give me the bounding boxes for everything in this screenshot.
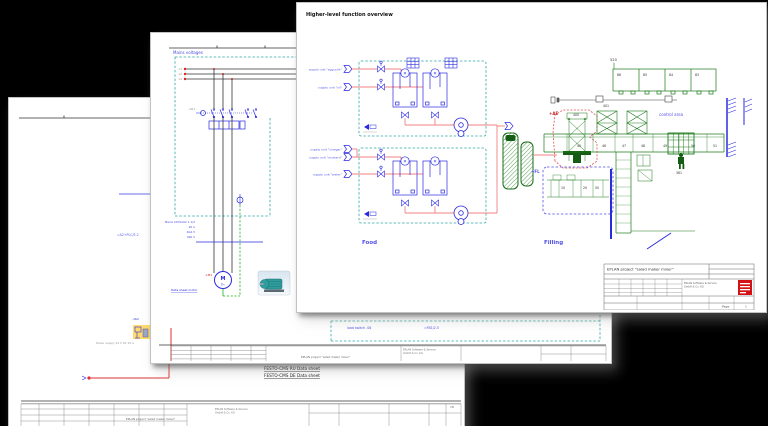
heater-icons [407, 58, 457, 68]
top-station-numbers: 86 85 84 83 [617, 73, 699, 77]
interruption-arrow-icon [82, 376, 86, 380]
back-page-marker: 1B [450, 405, 454, 409]
front-titleblock-project: EPLAN project "salad maker mixer" [607, 267, 674, 272]
fl-conveyor [547, 175, 609, 197]
bottom-note-ref: =FB1/2.5 [424, 326, 439, 330]
motor-photo [258, 271, 290, 295]
bus-tap-dot [184, 73, 186, 75]
ref-400: 400 [573, 113, 579, 117]
middle-title-block [159, 345, 606, 361]
desktop-canvas: =A2+PLC/5.2 -1K2 Power supply 24 V DC 10… [0, 0, 768, 426]
highlighted-symbol-cluster: -1K2 [132, 317, 151, 341]
front-page-label: Page [722, 305, 729, 309]
food-label: Food [362, 240, 377, 246]
motor-symbol: M 3~ -1M1 [205, 272, 231, 289]
station-machines [597, 111, 647, 134]
svg-text:45: 45 [577, 144, 581, 148]
ref-361: 361 [676, 171, 682, 175]
supply-note-text: Power supply 24 V DC 10 A [96, 341, 134, 345]
supply-label-2: supply unit "oil" [318, 85, 342, 89]
motor-feeder-circuit: -1Q1 [188, 69, 257, 273]
fl-dashed-box [543, 167, 613, 214]
svg-text:86: 86 [617, 73, 621, 77]
top-conveyor-row [613, 69, 716, 94]
middle-header-label: Mains voltages [173, 50, 203, 55]
front-titleblock-company2: GmbH & Co. KG [684, 285, 704, 289]
svg-text:10: 10 [561, 186, 565, 190]
mixer-logo-icons [363, 124, 377, 219]
svg-text:M: M [434, 159, 437, 163]
front-sheet-drawing: Higher-level function overview supply un… [297, 3, 764, 310]
contactor-tag: -1Q1 [188, 107, 195, 111]
fl-station-numbers: 10 20 50 [561, 186, 599, 190]
svg-text:M: M [404, 159, 407, 163]
front-page-value: 1 [745, 305, 747, 309]
back-titleblock-company2: GmbH & Co. KG [215, 411, 235, 415]
bottom-note-text: load switch -S6 [347, 326, 371, 330]
supply-label-1: supply unit "egg yolk" [309, 67, 343, 71]
tank-symbols [393, 69, 447, 195]
middle-titleblock-project: EPLAN project "salad maker mixer" [301, 355, 351, 359]
front-titleblock-company1: EPLAN Software & Service [684, 281, 717, 285]
svg-text:85: 85 [643, 73, 647, 77]
phase-label-l1: L1 [179, 67, 183, 71]
phase-label-l2: L2 [179, 72, 183, 76]
svg-text:49: 49 [663, 144, 667, 148]
filler-machine [563, 113, 591, 163]
svg-text:M: M [434, 71, 437, 75]
control-area-label: control area [659, 112, 684, 117]
back-title-block [21, 401, 461, 426]
door-swing-line [647, 233, 671, 249]
supply-label-5: supply unit "water" [313, 172, 343, 176]
filling-label: Filling [544, 240, 563, 246]
sheet-front-page[interactable]: Higher-level function overview supply un… [296, 2, 767, 313]
back-titleblock-company1: EPLAN Software & Service [215, 407, 248, 411]
svg-text:83: 83 [695, 73, 699, 77]
sensor-line [551, 96, 677, 103]
ref-401: 401 [603, 104, 609, 108]
cable-spec-3: 4G2.5 [187, 230, 196, 234]
svg-text:46: 46 [602, 144, 606, 148]
food-section: supply unit "egg yolk" supply unit "oil"… [309, 58, 557, 246]
motor-phase: 3~ [221, 283, 226, 287]
operator-figure [678, 153, 684, 169]
svg-text:48: 48 [641, 144, 645, 148]
svg-text:20: 20 [583, 186, 587, 190]
right-wall-sections [727, 98, 752, 157]
festo-de-datasheet-link[interactable]: FESTO-CMS DE Data sheet [264, 373, 320, 378]
pump-icons [454, 118, 468, 225]
svg-text:50: 50 [595, 186, 599, 190]
motor-datasheet-link[interactable]: Data sheet motor [171, 288, 198, 292]
cable-spec-4: 400 V [187, 235, 195, 239]
valve-icons [378, 61, 439, 206]
cross-reference-text: =A2+PLC/5.2 [117, 233, 139, 237]
transfer-arrow-icon [505, 123, 513, 130]
phase-label-l3: L3 [179, 77, 183, 81]
supply-label-4: supply unit "mustard" [309, 155, 342, 159]
conveyor-station-numbers: 45 46 47 48 49 50 51 [577, 144, 717, 148]
heat-exchanger-icons [503, 133, 533, 189]
middle-titleblock-company1: EPLAN Software & Service [403, 348, 436, 352]
cable-spec-1: Mains CAT/LVAC 1 1/2 [165, 220, 195, 224]
area-ae-label: +AE [549, 111, 558, 116]
svg-text:51: 51 [713, 144, 717, 148]
cable-spec-2: 20 A [189, 225, 195, 229]
cluster-tag: -1K2 [132, 317, 139, 321]
svg-text:M: M [404, 71, 407, 75]
ref-520: 520 [610, 58, 618, 62]
area-fl-label: +FL [531, 169, 540, 174]
svg-text:84: 84 [669, 73, 673, 77]
motor-tag: -1M1 [205, 273, 212, 277]
page-title: Higher-level function overview [306, 12, 393, 18]
bus-tap-dot [184, 68, 186, 70]
festo-ru-datasheet-link[interactable]: FESTO-CMS RU Data sheet [264, 366, 320, 371]
svg-text:47: 47 [622, 144, 626, 148]
bus-tap-dot [184, 78, 186, 80]
filling-section: 520 86 85 84 83 [531, 58, 752, 249]
data-sheet-links: FESTO-CMS RU Data sheet FESTO-CMS DE Dat… [264, 366, 320, 378]
middle-titleblock-company2: GmbH & Co. KG [403, 351, 423, 355]
eplan-logo-icon [738, 280, 752, 295]
motor-letter: M [221, 276, 226, 282]
back-titleblock-project: EPLAN project "salad maker mixer" [126, 417, 176, 421]
supply-label-3: supply unit "vinegar" [310, 147, 342, 151]
food-piping [352, 69, 557, 213]
svg-text:50: 50 [691, 144, 695, 148]
